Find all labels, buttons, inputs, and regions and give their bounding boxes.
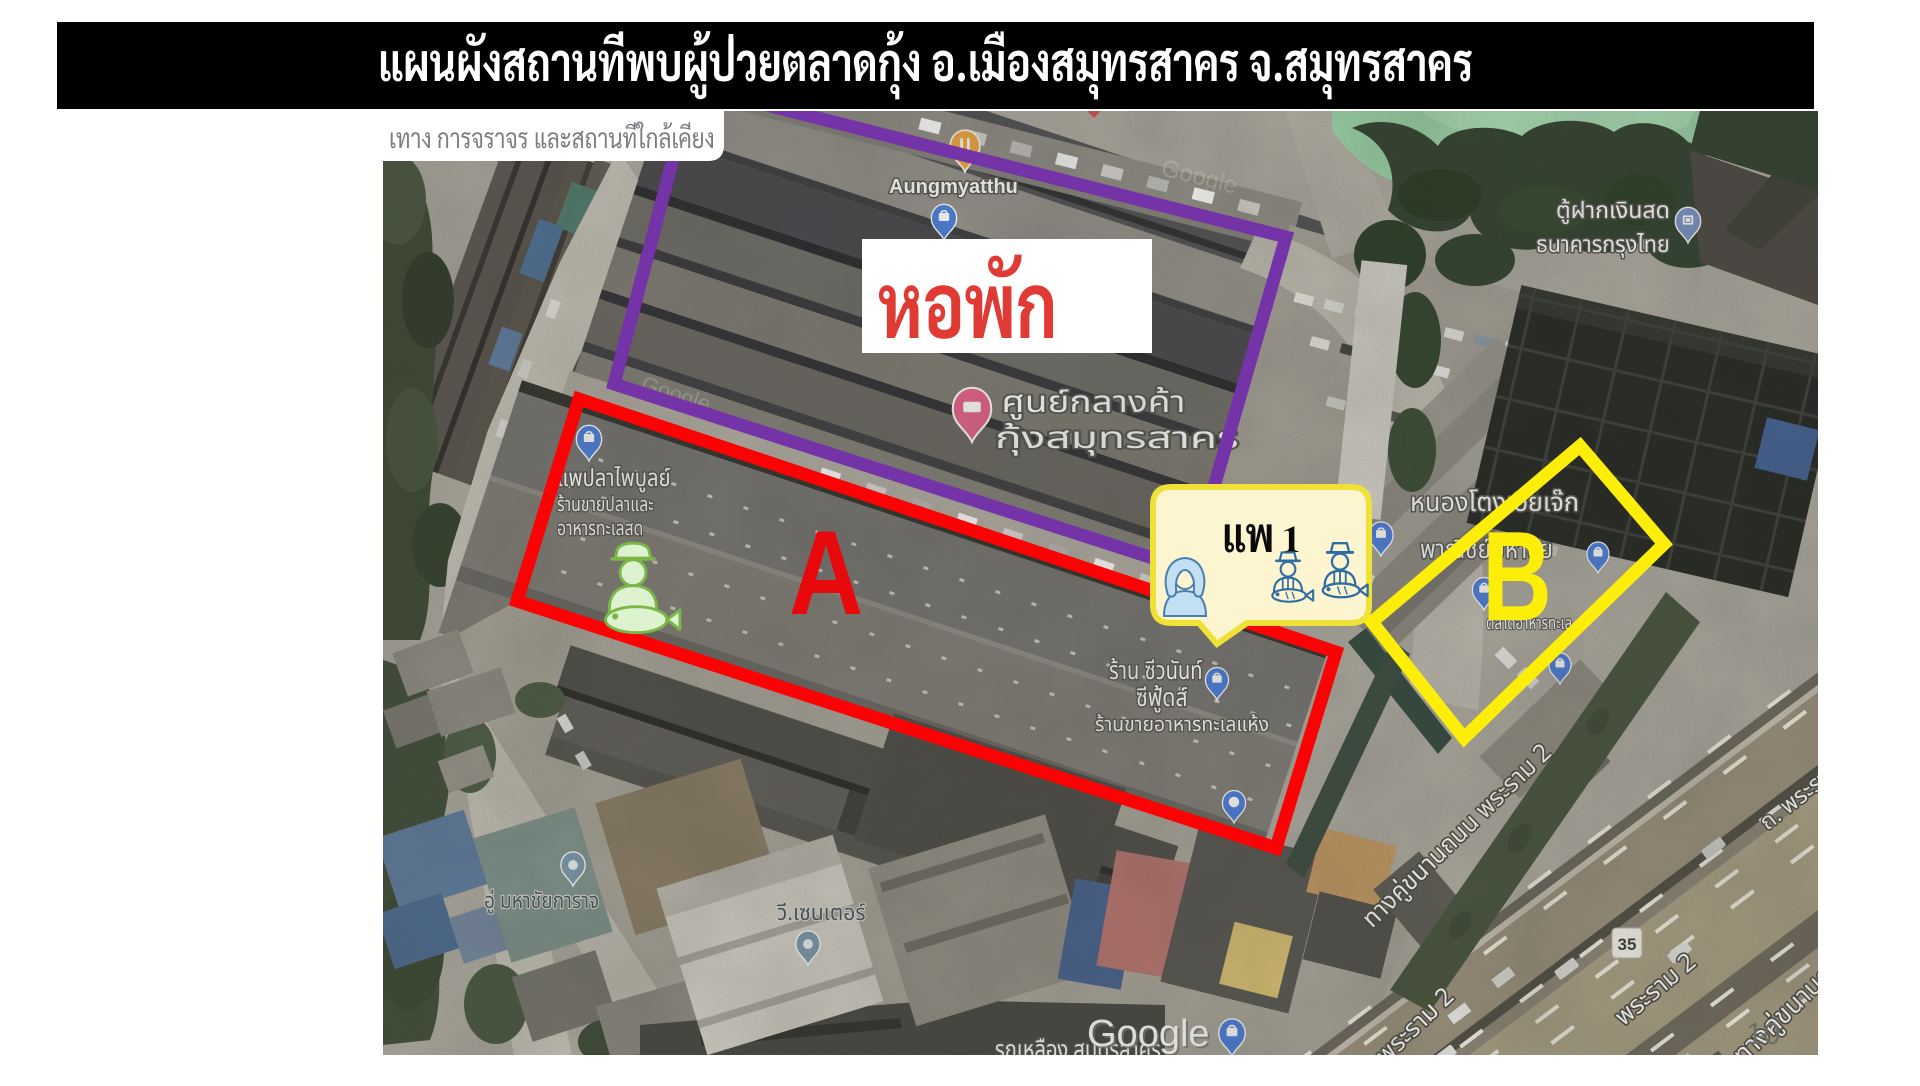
svg-text:10: 10 <box>1746 1016 1780 1051</box>
svg-text:A: A <box>789 506 864 640</box>
svg-text:B: B <box>1482 505 1552 647</box>
